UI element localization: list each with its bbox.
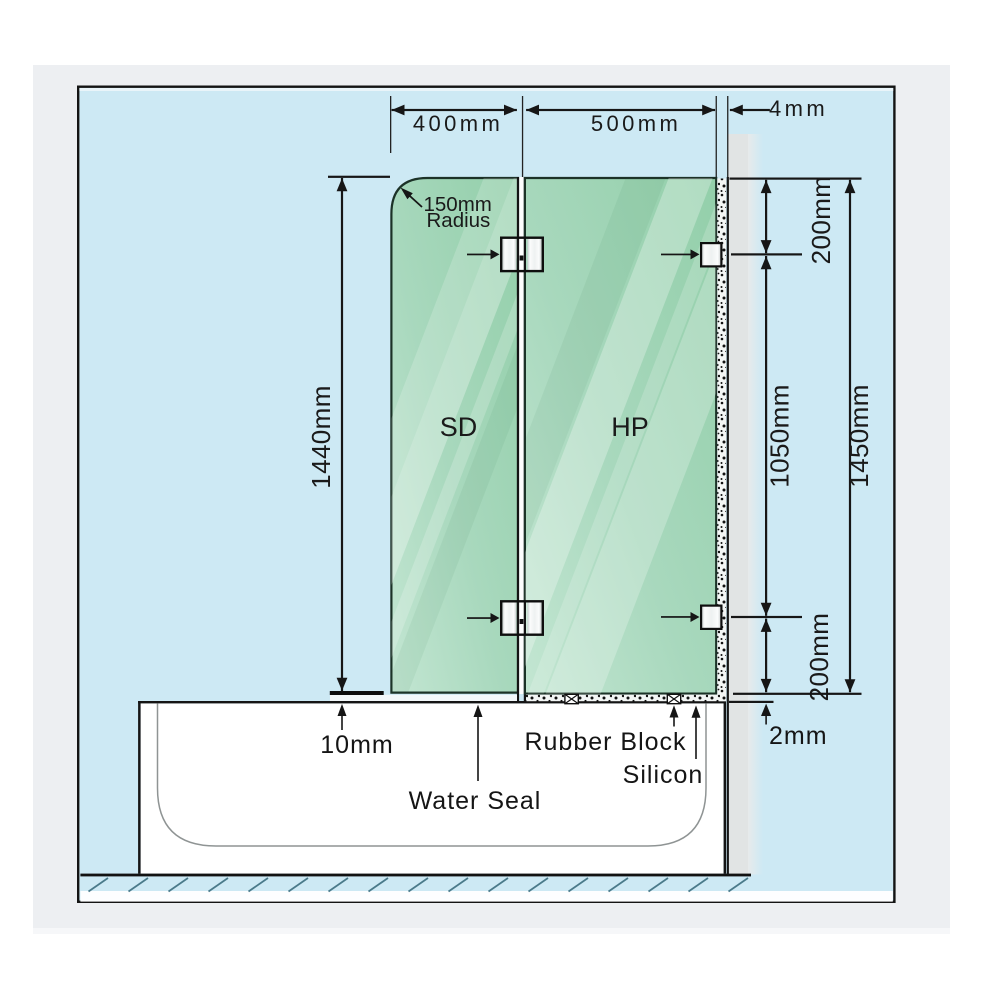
svg-text:Rubber Block: Rubber Block	[524, 728, 686, 756]
svg-text:Radius: Radius	[427, 209, 491, 232]
svg-text:200mm: 200mm	[806, 176, 836, 265]
svg-text:400mm: 400mm	[413, 111, 503, 136]
svg-text:Silicon: Silicon	[623, 761, 704, 789]
svg-text:Water Seal: Water Seal	[409, 787, 542, 815]
svg-text:500mm: 500mm	[591, 111, 681, 136]
svg-text:2mm: 2mm	[769, 722, 828, 750]
svg-text:1450mm: 1450mm	[844, 384, 874, 488]
svg-text:1050mm: 1050mm	[765, 384, 795, 488]
svg-text:200mm: 200mm	[804, 613, 834, 702]
svg-text:SD: SD	[440, 412, 478, 442]
svg-text:1440mm: 1440mm	[306, 385, 336, 489]
svg-text:HP: HP	[611, 412, 649, 442]
svg-text:4mm: 4mm	[769, 96, 828, 121]
svg-text:10mm: 10mm	[320, 731, 393, 759]
